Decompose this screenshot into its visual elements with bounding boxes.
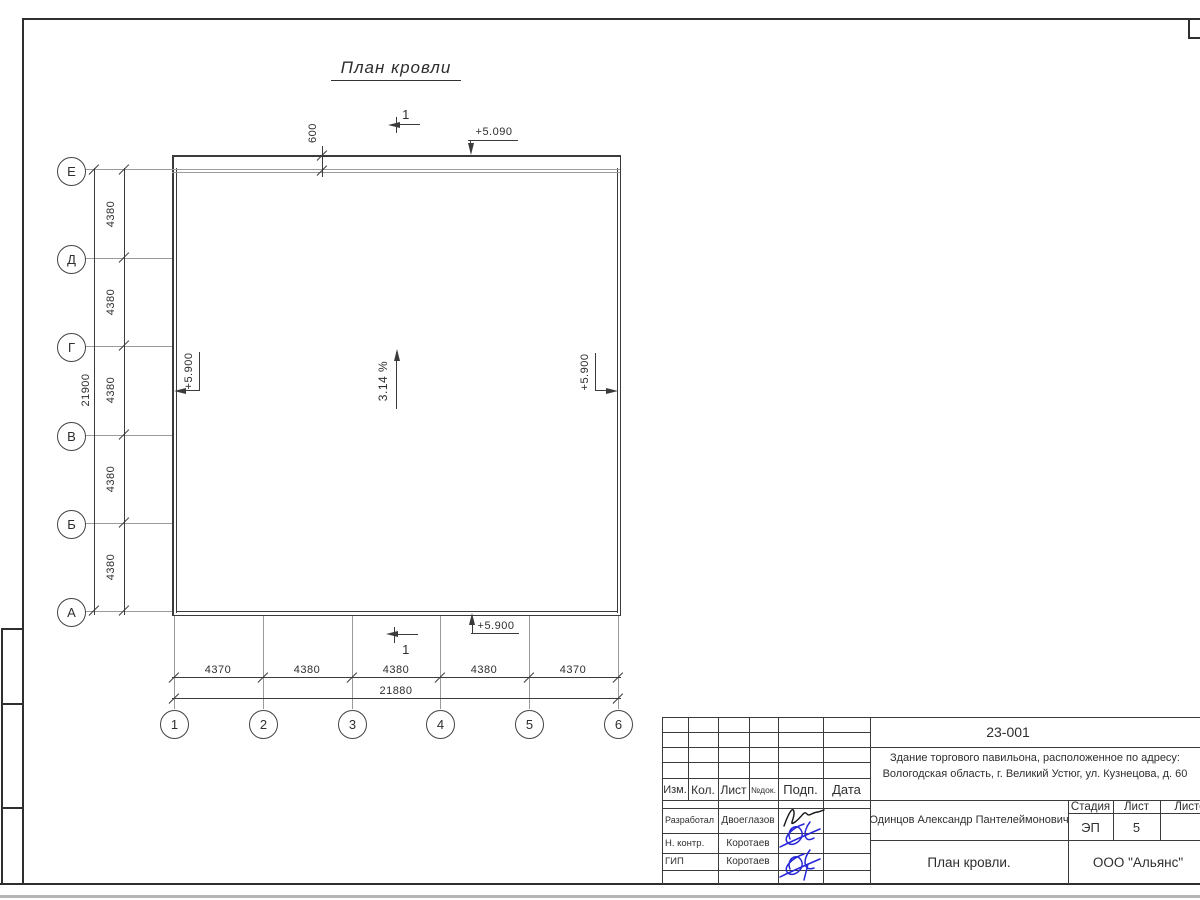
- tb-role: ГИП: [665, 853, 718, 870]
- axis-bubble-1: 1: [160, 710, 189, 739]
- dim-total-value: 21900: [80, 365, 92, 415]
- elevation-arrow-icon: [606, 388, 618, 394]
- titleblock-line: [662, 870, 870, 871]
- axis-bubble-E: Е: [57, 157, 86, 186]
- elevation-arrow-icon: [469, 613, 475, 625]
- axis-label: 3: [349, 717, 356, 732]
- dim-line-total: [172, 698, 621, 699]
- elevation-top: +5.090: [471, 126, 517, 138]
- section-number: 1: [399, 107, 413, 122]
- corner-box-line: [1188, 37, 1200, 39]
- drawing-title: План кровли: [331, 58, 461, 81]
- axis-bubble-3: 3: [338, 710, 367, 739]
- corner-box-line: [1188, 18, 1190, 37]
- axis-label: Д: [67, 252, 76, 267]
- tb-col-izm: Изм.: [662, 779, 688, 800]
- axis-bubble-5: 5: [515, 710, 544, 739]
- tb-col-ndok: №док.: [749, 779, 778, 800]
- tb-sheet-value: 5: [1113, 814, 1160, 840]
- dim-value: 4380: [105, 547, 117, 587]
- axis-label: Е: [67, 164, 76, 179]
- axis-bubble-4: 4: [426, 710, 455, 739]
- elevation-left: +5.900: [183, 349, 195, 393]
- axis-bubble-D: Д: [57, 245, 86, 274]
- section-arrow-icon: [388, 122, 400, 128]
- axis-line: [85, 346, 172, 347]
- dim-value: 4370: [553, 664, 593, 676]
- section-arrow-icon: [386, 631, 398, 637]
- signature-nkontr-gip-icon: [774, 820, 826, 882]
- axis-label: В: [67, 429, 76, 444]
- elevation-right: +5.900: [579, 350, 591, 394]
- filing-box-line: [1, 703, 22, 705]
- tb-company: ООО "Альянс": [1068, 841, 1200, 884]
- tb-col-kol: Кол.: [688, 779, 718, 800]
- roof-outline-right-outer: [620, 155, 622, 616]
- dim-value: 4380: [376, 664, 416, 676]
- slope-arrow-icon: [394, 349, 400, 361]
- tb-role: Н. контр.: [665, 833, 718, 853]
- titleblock-line: [662, 717, 663, 884]
- roof-outline-left-outer: [172, 155, 174, 616]
- titleblock-line: [1160, 800, 1161, 840]
- axis-label: 2: [260, 717, 267, 732]
- tb-col-data: Дата: [823, 779, 870, 800]
- tb-sheet-label: Лист: [1113, 800, 1160, 814]
- elevation-bottom: +5.900: [473, 620, 519, 632]
- dim-value: 4380: [464, 664, 504, 676]
- axis-line: [263, 616, 264, 709]
- elevation-leader: [468, 140, 518, 141]
- dim-value-parapet: 600: [307, 116, 319, 150]
- titleblock-line: [870, 747, 1200, 748]
- tb-project-line2: Вологодская область, г. Великий Устюг, у…: [870, 766, 1200, 781]
- drawing-sheet: План кровли Е Д Г В Б А 4380 4380 4380 4…: [0, 0, 1200, 900]
- axis-bubble-G: Г: [57, 333, 86, 362]
- axis-line: [85, 258, 172, 259]
- tb-project-line1: Здание торгового павильона, расположенно…: [870, 750, 1200, 765]
- tb-doc-number: 23-001: [870, 719, 1146, 745]
- axis-line: [85, 523, 172, 524]
- tb-role: Разработал: [665, 808, 718, 832]
- axis-label: 4: [437, 717, 444, 732]
- dim-value: 4380: [105, 194, 117, 234]
- axis-label: Г: [68, 340, 75, 355]
- paper-edge-line: [0, 895, 1200, 898]
- frame-line-left: [22, 18, 24, 884]
- slope-label: 3.14 %: [376, 354, 390, 408]
- titleblock-line: [662, 800, 870, 801]
- axis-label: 1: [171, 717, 178, 732]
- elevation-leader: [595, 353, 596, 391]
- axis-line: [85, 435, 172, 436]
- filing-box-line: [1, 807, 22, 809]
- dim-line: [124, 168, 125, 615]
- dim-total-value: 21880: [371, 685, 421, 697]
- elevation-arrow-icon: [468, 143, 474, 155]
- tb-name: Коротаев: [718, 833, 778, 853]
- roof-wall-line: [85, 169, 620, 170]
- tb-stage-value: ЭП: [1068, 814, 1113, 840]
- titleblock-line: [662, 747, 870, 748]
- tb-sheet-title: План кровли.: [870, 841, 1068, 884]
- section-number: 1: [399, 642, 413, 657]
- titleblock-line: [662, 732, 870, 733]
- axis-line: [85, 611, 172, 612]
- tb-name: Двоеглазов: [718, 808, 778, 832]
- axis-label: 5: [526, 717, 533, 732]
- axis-bubble-6: 6: [604, 710, 633, 739]
- filing-box-line: [1, 628, 3, 883]
- axis-line: [352, 616, 353, 709]
- axis-bubble-2: 2: [249, 710, 278, 739]
- filing-box-line: [1, 628, 22, 630]
- dim-value: 4380: [105, 459, 117, 499]
- dim-value: 4370: [198, 664, 238, 676]
- dim-line: [172, 677, 621, 678]
- axis-bubble-A: А: [57, 598, 86, 627]
- roof-outline-top: [172, 155, 621, 157]
- axis-bubble-B: Б: [57, 510, 86, 539]
- tb-col-podp: Подп.: [778, 779, 823, 800]
- elevation-arrow-icon: [174, 388, 186, 394]
- tb-stage-label: Стадия: [1068, 800, 1113, 814]
- dim-value: 4380: [287, 664, 327, 676]
- frame-line-top: [22, 18, 1200, 20]
- tb-client: Одинцов Александр Пантелеймонович: [872, 802, 1066, 838]
- axis-bubble-V: В: [57, 422, 86, 451]
- axis-line: [440, 616, 441, 709]
- dim-value: 4380: [105, 282, 117, 322]
- tb-sheets-label: Листов: [1163, 800, 1200, 814]
- axis-line: [529, 616, 530, 709]
- elevation-leader: [199, 352, 200, 391]
- titleblock-line: [662, 762, 870, 763]
- dim-line: [322, 146, 323, 177]
- dim-value: 4380: [105, 370, 117, 410]
- tb-name: Коротаев: [718, 853, 778, 870]
- axis-label: А: [67, 605, 76, 620]
- roof-outline-bottom-inner: [176, 611, 618, 612]
- axis-label: 6: [615, 717, 622, 732]
- axis-label: Б: [67, 517, 76, 532]
- tb-col-list: Лист: [718, 779, 749, 800]
- elevation-leader: [471, 633, 519, 634]
- dim-line-total: [94, 168, 95, 615]
- roof-wall-line: [172, 172, 620, 173]
- roof-outline-bottom-outer: [172, 615, 621, 617]
